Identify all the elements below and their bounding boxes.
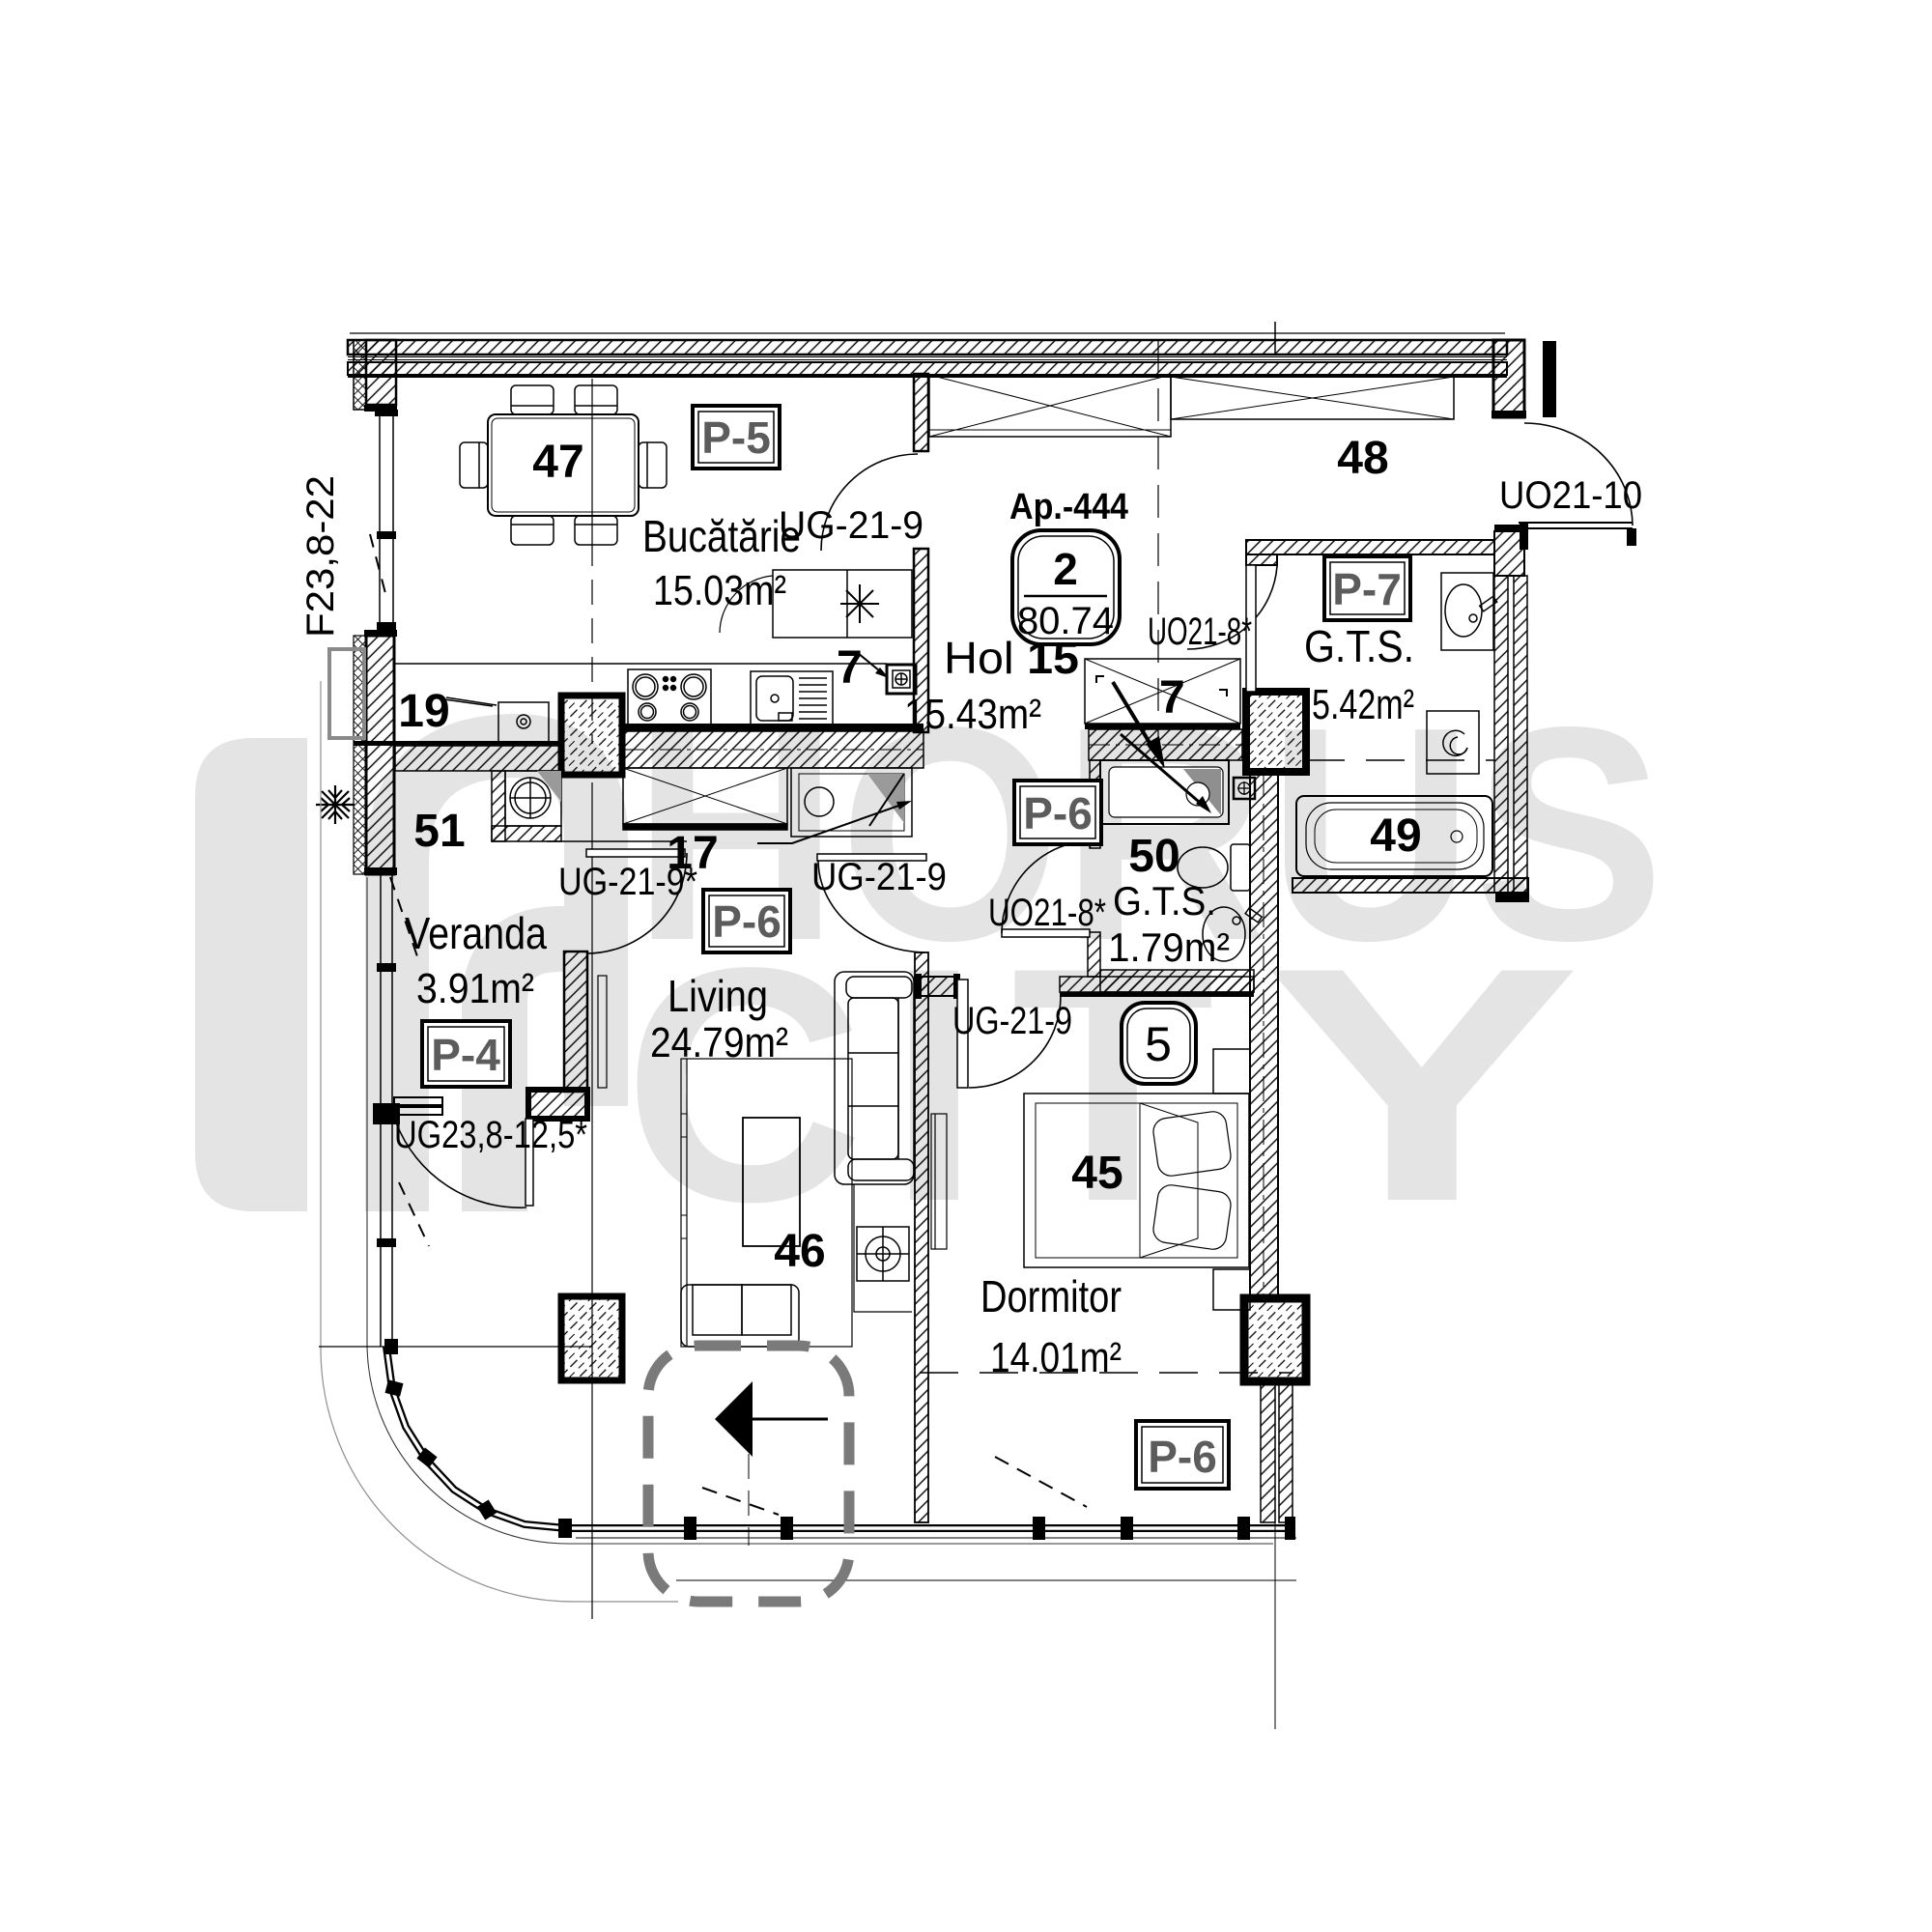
svg-text:45: 45 — [1071, 1148, 1122, 1199]
svg-text:5.42m²: 5.42m² — [1312, 681, 1414, 728]
svg-text:3.91m²: 3.91m² — [416, 965, 534, 1012]
svg-text:UG-21-9*: UG-21-9* — [558, 861, 697, 903]
svg-text:Y: Y — [1263, 899, 1581, 1271]
svg-text:7: 7 — [837, 642, 863, 694]
svg-text:48: 48 — [1337, 433, 1388, 484]
svg-text:2: 2 — [1053, 544, 1078, 594]
svg-text:UO21-8*: UO21-8* — [1148, 611, 1252, 653]
svg-text:UG-21-9: UG-21-9 — [779, 504, 923, 547]
svg-text:Hol 15: Hol 15 — [944, 633, 1079, 683]
svg-text:P-6: P-6 — [1148, 1432, 1217, 1482]
svg-text:51: 51 — [413, 806, 465, 857]
svg-text:G.T.S.: G.T.S. — [1304, 621, 1414, 671]
svg-text:Bucătărie: Bucătărie — [642, 511, 801, 561]
svg-text:49: 49 — [1370, 810, 1421, 862]
svg-text:G.T.S.: G.T.S. — [1113, 878, 1216, 923]
svg-text:UG-21-9: UG-21-9 — [811, 856, 947, 898]
svg-text:F23,8-22: F23,8-22 — [299, 475, 342, 638]
svg-text:UG23,8-12,5*: UG23,8-12,5* — [394, 1114, 587, 1156]
svg-text:Veranda: Veranda — [405, 908, 547, 958]
svg-text:15.03m²: 15.03m² — [653, 567, 786, 614]
svg-text:46: 46 — [774, 1226, 825, 1277]
svg-text:Ap.-444: Ap.-444 — [1009, 487, 1128, 527]
svg-text:UG-21-9: UG-21-9 — [952, 1000, 1072, 1042]
svg-text:UO21-10: UO21-10 — [1499, 474, 1642, 517]
svg-text:UO21-8*: UO21-8* — [988, 892, 1106, 934]
svg-text:47: 47 — [532, 437, 583, 488]
svg-text:P-6: P-6 — [1023, 788, 1093, 838]
svg-text:C: C — [623, 899, 864, 1271]
svg-text:14.01m²: 14.01m² — [990, 1334, 1122, 1381]
svg-text:Dormitor: Dormitor — [980, 1271, 1122, 1321]
svg-text:P-6: P-6 — [712, 896, 781, 947]
svg-text:P-4: P-4 — [431, 1030, 500, 1080]
svg-text:1.79m²: 1.79m² — [1108, 924, 1230, 970]
svg-text:50: 50 — [1128, 831, 1179, 882]
svg-text:15.43m²: 15.43m² — [904, 691, 1041, 738]
svg-text:P-5: P-5 — [701, 412, 771, 463]
svg-text:19: 19 — [398, 686, 449, 737]
svg-text:Living: Living — [668, 971, 768, 1021]
svg-text:7: 7 — [1159, 672, 1185, 724]
svg-text:5: 5 — [1145, 1017, 1172, 1071]
svg-text:24.79m²: 24.79m² — [650, 1019, 788, 1066]
svg-text:P-7: P-7 — [1332, 564, 1402, 614]
